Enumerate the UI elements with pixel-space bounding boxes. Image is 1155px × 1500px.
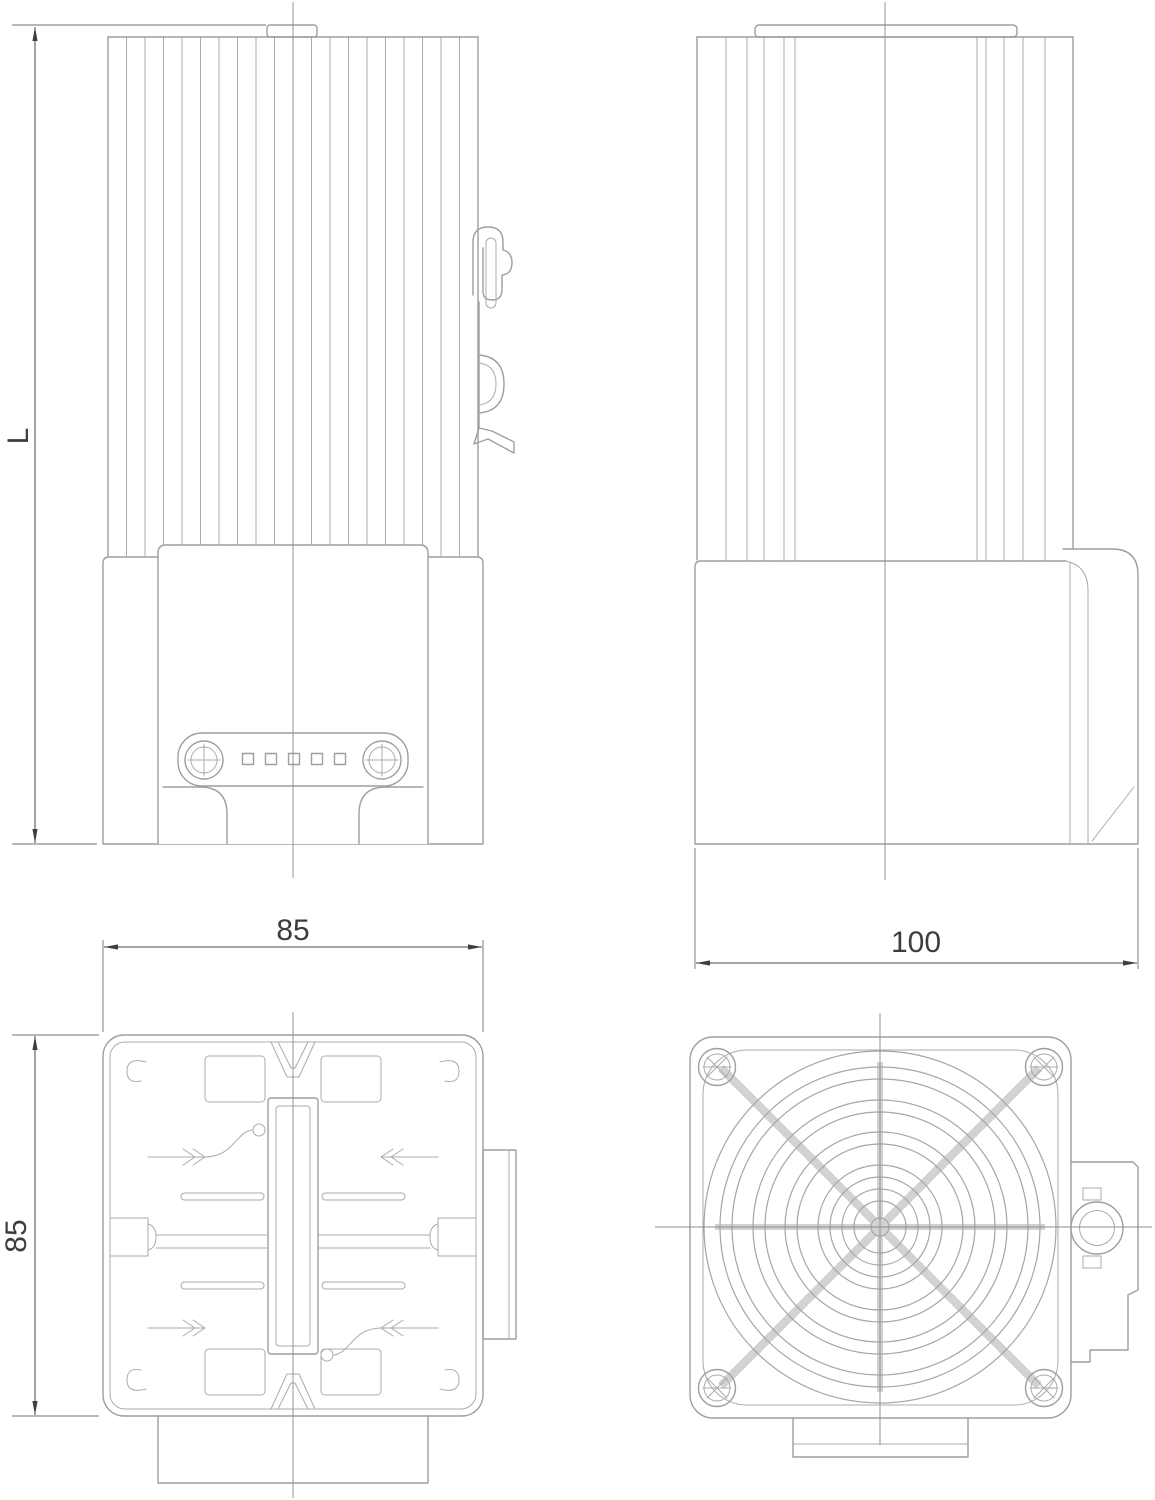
side-view: 100	[695, 2, 1138, 969]
clip-connector	[205, 1130, 252, 1157]
clip-housing-fill	[1066, 549, 1138, 844]
corner-curl	[127, 1061, 146, 1082]
spring-clip	[148, 1149, 205, 1165]
din-tab-notch	[1083, 1256, 1101, 1268]
fan-grille-view	[655, 1013, 1152, 1457]
dimension-depth-100: 100	[695, 848, 1138, 969]
corner-curl	[440, 1369, 459, 1390]
dimension-label-85-width: 85	[276, 914, 309, 947]
element-slot	[322, 1282, 405, 1289]
din-tab-rear	[1071, 1162, 1138, 1362]
clip-connector-loop	[321, 1349, 333, 1361]
dimension-label-L: L	[2, 428, 35, 445]
din-clip-foot	[474, 428, 514, 453]
top-cap	[755, 25, 1017, 37]
spring-clip	[148, 1320, 205, 1336]
din-clip-barrel	[1071, 1202, 1123, 1254]
din-clip-slot	[486, 238, 496, 308]
front-view: L	[2, 2, 514, 878]
din-tab-notch	[1083, 1188, 1101, 1200]
terminal-cover	[793, 1418, 968, 1457]
corner-curl	[127, 1369, 146, 1390]
chamber	[205, 1056, 265, 1102]
dimension-label-100: 100	[891, 926, 941, 959]
clip-connector	[334, 1328, 381, 1355]
top-cap	[267, 25, 317, 37]
element-slot	[322, 1193, 405, 1200]
spring-clip	[381, 1320, 438, 1336]
din-clip-bump-inner	[479, 363, 496, 405]
chamber	[321, 1056, 381, 1102]
element-slot	[181, 1193, 264, 1200]
element-slot	[181, 1282, 264, 1289]
spring-clip	[381, 1149, 438, 1165]
side-slot	[430, 1218, 476, 1256]
technical-drawing: L 100	[0, 0, 1155, 1500]
din-clip-barrel-inner	[1080, 1211, 1115, 1246]
dimension-label-85-side: 85	[0, 1219, 33, 1252]
clip-connector-loop	[253, 1124, 265, 1136]
chamber	[321, 1349, 381, 1395]
side-slot	[110, 1218, 156, 1256]
chamber	[205, 1349, 265, 1395]
dimension-side-85: 85	[0, 1035, 99, 1416]
din-clip-front	[473, 227, 514, 453]
din-tab	[483, 1150, 516, 1339]
top-view: 85 85	[0, 914, 516, 1498]
corner-curl	[440, 1061, 459, 1082]
